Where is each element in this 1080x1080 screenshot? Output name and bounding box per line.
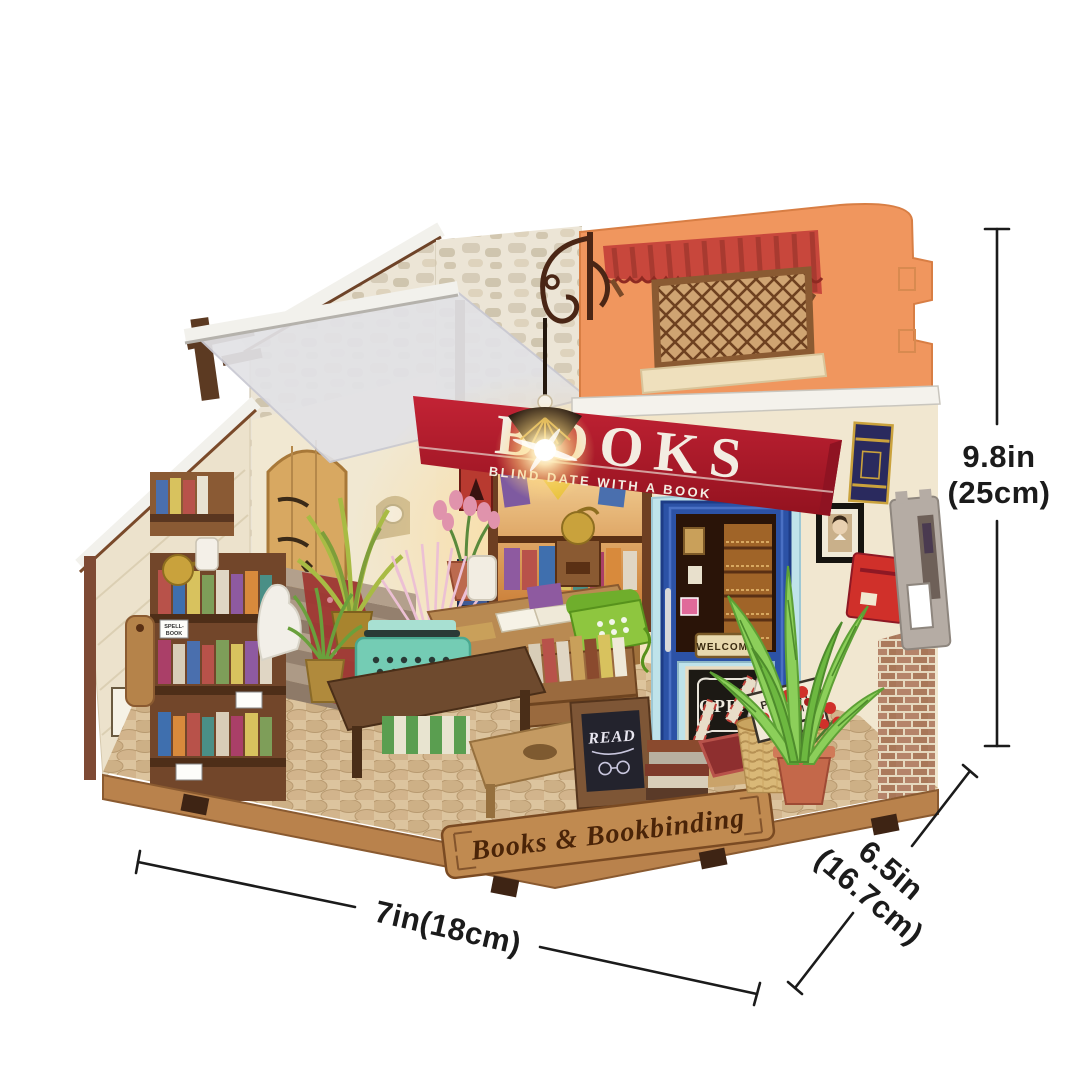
price-tag xyxy=(176,764,202,780)
price-tag xyxy=(236,692,262,708)
price-tag: SPELL- BOOK xyxy=(160,620,188,638)
width-label: 7in(18cm) xyxy=(371,894,524,962)
mug xyxy=(468,556,496,600)
dim-tick-bottom xyxy=(788,982,802,994)
striped-box xyxy=(382,716,470,754)
door-handle xyxy=(665,588,671,652)
corner-post xyxy=(84,556,96,780)
tag-line1: SPELL- xyxy=(164,624,184,630)
book-stack xyxy=(645,740,709,800)
left-bookshelf: SPELL- BOOK xyxy=(126,538,286,801)
pink-sticker xyxy=(681,598,698,615)
product-image: WELCOME OPEN BOOKS BLIND DATE WITH A xyxy=(0,0,1080,1080)
tag-line2: BOOK xyxy=(166,631,183,637)
hanging-wall-shelf xyxy=(150,472,234,536)
book-spine-decor xyxy=(849,423,892,503)
miniature-bookshop-scene: WELCOME OPEN BOOKS BLIND DATE WITH A xyxy=(0,0,1080,1080)
height-dimension: 9.8in (25cm) xyxy=(948,229,1051,746)
height-label-line2: (25cm) xyxy=(948,475,1051,510)
cutting-board-shelf xyxy=(126,616,154,706)
chalkboard-label: READ xyxy=(587,727,637,747)
height-label-line1: 9.8in xyxy=(962,439,1035,474)
lattice-window xyxy=(641,270,826,393)
desk-book xyxy=(527,583,564,610)
brick-pillar xyxy=(878,624,935,800)
white-jug xyxy=(196,538,218,570)
bookshop-model: WELCOME OPEN BOOKS BLIND DATE WITH A xyxy=(80,204,951,897)
orange-upper-facade xyxy=(572,204,940,418)
door-window xyxy=(676,514,776,652)
